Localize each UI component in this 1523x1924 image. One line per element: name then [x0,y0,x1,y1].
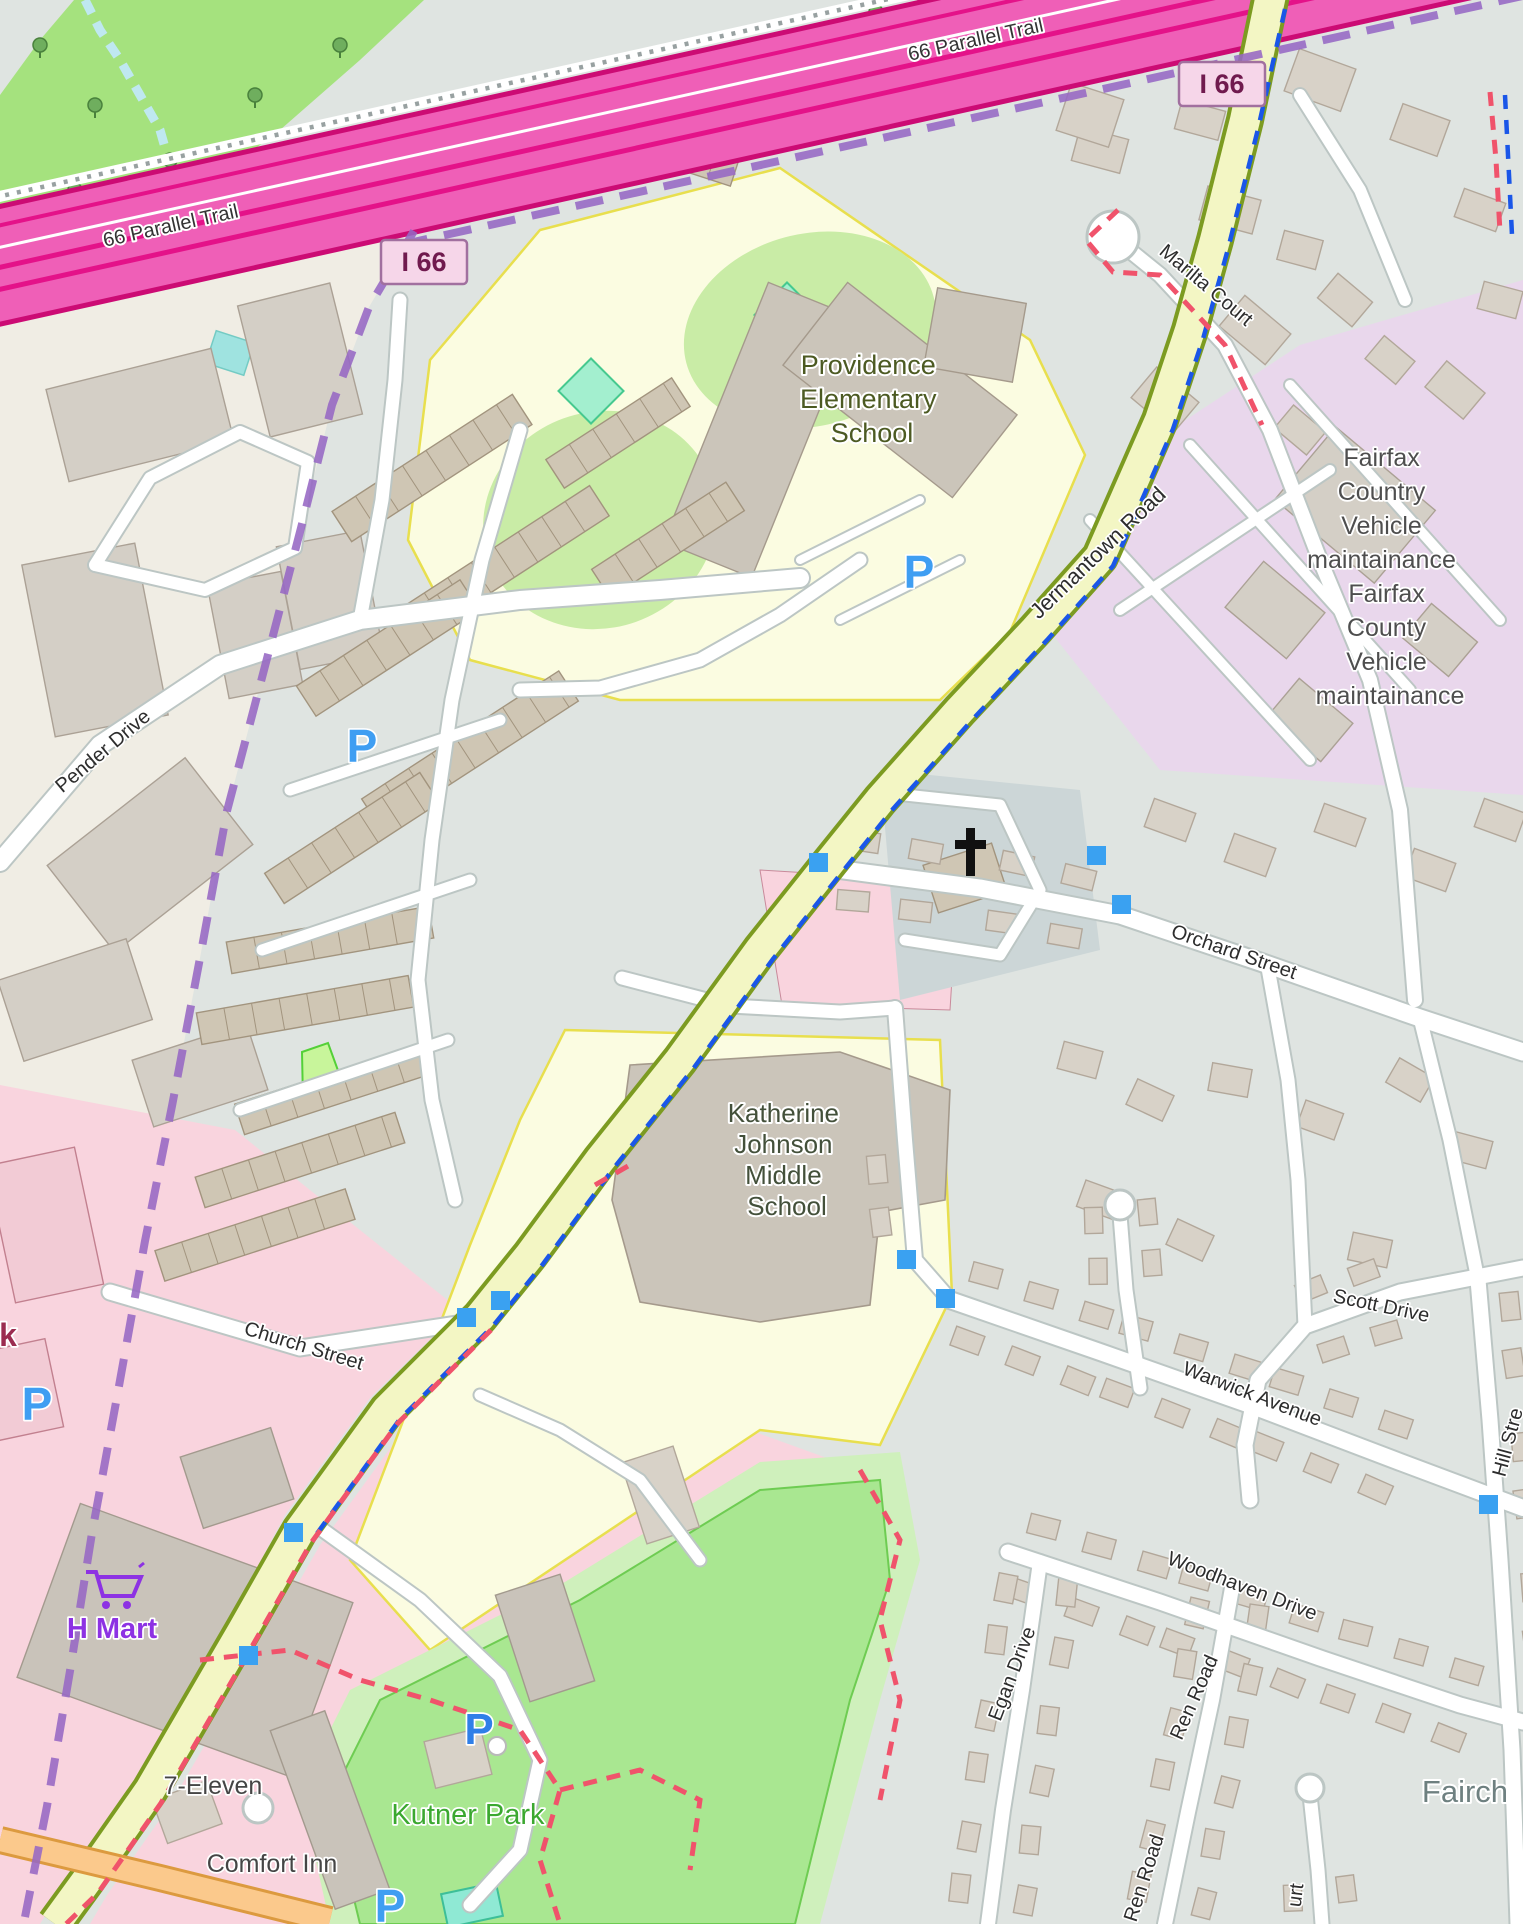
parking-icon: P [375,1880,406,1924]
building [1037,1706,1059,1736]
building [965,1752,988,1782]
traffic-signal-icon [239,1646,258,1665]
building [949,1873,971,1903]
interstate-shield: I 66 [381,240,467,284]
building [985,1625,1007,1655]
building [1089,1258,1107,1284]
svg-text:I 66: I 66 [401,247,446,277]
building [957,1821,981,1852]
building [866,1155,887,1185]
interstate-shield: I 66 [1179,62,1265,106]
cul-de-sac [1296,1774,1324,1802]
building [1336,1875,1357,1903]
parking-icon: P [904,546,935,598]
park-label-partial-k: k [0,1317,17,1353]
parking-icon: P [464,1705,493,1754]
poi-label-kutner-park: Kutner Park [391,1799,545,1831]
traffic-signal-icon [1087,846,1106,865]
building [899,899,933,922]
building [1084,1207,1103,1233]
traffic-signal-icon [1479,1495,1498,1514]
traffic-signal-icon [284,1523,303,1542]
traffic-signal-icon [809,853,828,872]
cul-de-sac [1087,211,1139,263]
poi-label-7eleven: 7-Eleven [164,1772,263,1800]
traffic-signal-icon [936,1289,955,1308]
cul-de-sac [1105,1190,1135,1220]
building [1201,1828,1224,1859]
building [1019,1825,1041,1855]
svg-text:I 66: I 66 [1199,69,1244,99]
poi-label-comfort-inn: Comfort Inn [207,1850,338,1878]
street-label-court-partial: urt [1284,1882,1309,1908]
building [836,890,869,912]
building [1208,1063,1252,1098]
building [1502,1348,1523,1379]
building [1013,1885,1037,1916]
building [1225,1717,1249,1748]
place-label-partial: Fairch [1422,1774,1508,1809]
building [1499,1291,1521,1321]
map-canvas[interactable]: 66 Parallel Trail 66 Parallel Trail I 66… [0,0,1523,1924]
poi-label-hmart: H Mart [67,1613,158,1645]
building [870,1207,892,1237]
traffic-signal-icon [1112,895,1131,914]
parking-icon: P [22,1378,53,1430]
building [1142,1249,1162,1276]
building [1137,1198,1157,1226]
parking-icon: P [347,720,378,772]
traffic-signal-icon [491,1291,510,1310]
traffic-signal-icon [457,1308,476,1327]
traffic-signal-icon [897,1250,916,1269]
